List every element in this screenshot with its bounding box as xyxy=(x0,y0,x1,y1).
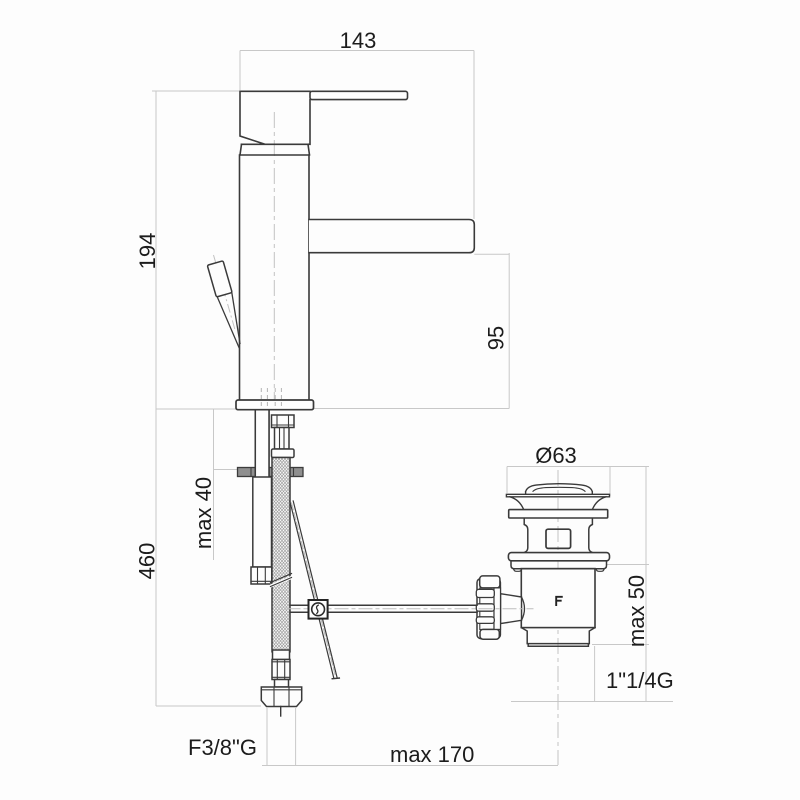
svg-text:max 170: max 170 xyxy=(390,742,474,767)
svg-text:max 40: max 40 xyxy=(191,477,216,549)
svg-text:143: 143 xyxy=(340,28,377,53)
svg-text:95: 95 xyxy=(484,326,509,350)
svg-text:F3/8"G: F3/8"G xyxy=(188,735,257,760)
svg-text:Ø63: Ø63 xyxy=(535,443,577,468)
svg-text:460: 460 xyxy=(135,543,160,580)
svg-text:194: 194 xyxy=(135,233,160,270)
svg-text:max 50: max 50 xyxy=(624,575,649,647)
svg-text:1"1/4G: 1"1/4G xyxy=(606,668,674,693)
